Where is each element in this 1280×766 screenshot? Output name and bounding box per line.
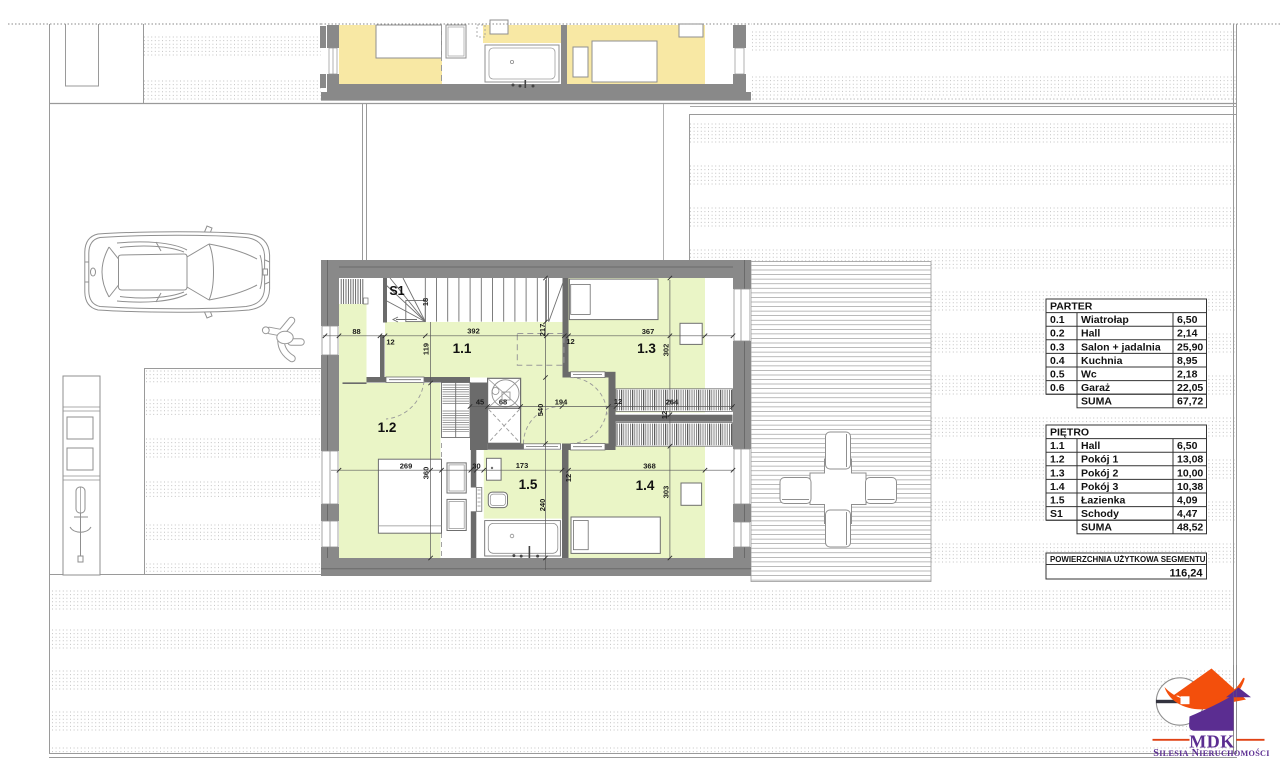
svg-text:88: 88 — [352, 327, 360, 336]
svg-text:13,08: 13,08 — [1177, 454, 1203, 466]
svg-text:PIĘTRO: PIĘTRO — [1050, 427, 1089, 439]
svg-text:8,95: 8,95 — [1177, 355, 1198, 367]
svg-text:1.5: 1.5 — [519, 477, 538, 492]
svg-text:S1: S1 — [389, 284, 404, 298]
svg-text:Pokój 3: Pokój 3 — [1081, 481, 1119, 493]
svg-text:25,90: 25,90 — [1177, 341, 1203, 353]
svg-text:2,18: 2,18 — [1177, 369, 1198, 381]
svg-text:119: 119 — [422, 343, 431, 355]
svg-text:SILESIA NIERUCHOMOŚCI: SILESIA NIERUCHOMOŚCI — [1153, 748, 1270, 759]
svg-text:4,09: 4,09 — [1177, 495, 1198, 507]
svg-text:1.2: 1.2 — [1050, 454, 1065, 466]
svg-text:POWIERZCHNIA UŻYTKOWA SEGMENTU: POWIERZCHNIA UŻYTKOWA SEGMENTU — [1050, 555, 1206, 564]
svg-text:Salon + jadalnia: Salon + jadalnia — [1081, 341, 1161, 353]
svg-text:217: 217 — [538, 324, 547, 337]
svg-text:264: 264 — [666, 398, 679, 407]
svg-text:0.5: 0.5 — [1050, 369, 1065, 381]
svg-text:Pokój 2: Pokój 2 — [1081, 467, 1119, 479]
svg-text:4,47: 4,47 — [1177, 508, 1198, 520]
svg-text:0.6: 0.6 — [1050, 382, 1065, 394]
svg-text:Garaż: Garaż — [1081, 382, 1110, 394]
svg-text:0.1: 0.1 — [1050, 314, 1065, 326]
svg-text:Kuchnia: Kuchnia — [1081, 355, 1123, 367]
svg-text:Wc: Wc — [1081, 369, 1097, 381]
svg-text:540: 540 — [536, 404, 545, 417]
svg-text:10,38: 10,38 — [1177, 481, 1203, 493]
svg-text:18: 18 — [421, 298, 430, 306]
svg-text:Schody: Schody — [1081, 508, 1119, 520]
svg-text:240: 240 — [538, 499, 547, 512]
svg-text:Hall: Hall — [1081, 328, 1100, 340]
svg-text:360: 360 — [422, 467, 431, 480]
svg-text:Łazienka: Łazienka — [1081, 495, 1126, 507]
svg-text:12: 12 — [566, 337, 574, 346]
svg-text:173: 173 — [516, 461, 529, 470]
svg-text:303: 303 — [662, 486, 671, 499]
svg-text:12: 12 — [564, 474, 573, 482]
svg-text:45: 45 — [476, 398, 484, 407]
svg-text:67,72: 67,72 — [1177, 396, 1203, 408]
svg-text:1.5: 1.5 — [1050, 495, 1065, 507]
svg-text:194: 194 — [555, 398, 568, 407]
svg-text:12: 12 — [386, 338, 394, 347]
svg-text:10,00: 10,00 — [1177, 467, 1203, 479]
svg-text:0.4: 0.4 — [1050, 355, 1065, 367]
svg-text:S1: S1 — [1050, 508, 1063, 520]
svg-text:SUMA: SUMA — [1081, 396, 1112, 408]
svg-text:0.2: 0.2 — [1050, 328, 1065, 340]
svg-text:12: 12 — [614, 397, 622, 406]
svg-text:1.2: 1.2 — [378, 420, 397, 435]
svg-text:269: 269 — [400, 462, 413, 471]
svg-text:SUMA: SUMA — [1081, 522, 1112, 534]
svg-text:392: 392 — [467, 327, 480, 336]
svg-text:12: 12 — [660, 411, 669, 419]
svg-text:367: 367 — [642, 327, 655, 336]
svg-text:30: 30 — [472, 462, 480, 471]
svg-text:Wiatrołap: Wiatrołap — [1081, 314, 1129, 326]
svg-text:2,14: 2,14 — [1177, 328, 1198, 340]
svg-text:68: 68 — [499, 398, 507, 407]
svg-text:1.3: 1.3 — [1050, 467, 1065, 479]
svg-text:116,24: 116,24 — [1169, 568, 1203, 580]
svg-text:22,05: 22,05 — [1177, 382, 1203, 394]
svg-text:6,50: 6,50 — [1177, 440, 1198, 452]
svg-text:48,52: 48,52 — [1177, 522, 1203, 534]
svg-text:0.3: 0.3 — [1050, 341, 1065, 353]
svg-text:368: 368 — [643, 462, 656, 471]
svg-text:PARTER: PARTER — [1050, 301, 1093, 313]
svg-text:302: 302 — [662, 344, 671, 357]
svg-text:Pokój 1: Pokój 1 — [1081, 454, 1119, 466]
svg-text:1.4: 1.4 — [636, 478, 655, 493]
svg-text:1.4: 1.4 — [1050, 481, 1065, 493]
svg-text:1.1: 1.1 — [1050, 440, 1065, 452]
svg-text:Hall: Hall — [1081, 440, 1100, 452]
svg-text:1.3: 1.3 — [637, 341, 656, 356]
svg-text:1.1: 1.1 — [453, 341, 472, 356]
svg-text:6,50: 6,50 — [1177, 314, 1198, 326]
